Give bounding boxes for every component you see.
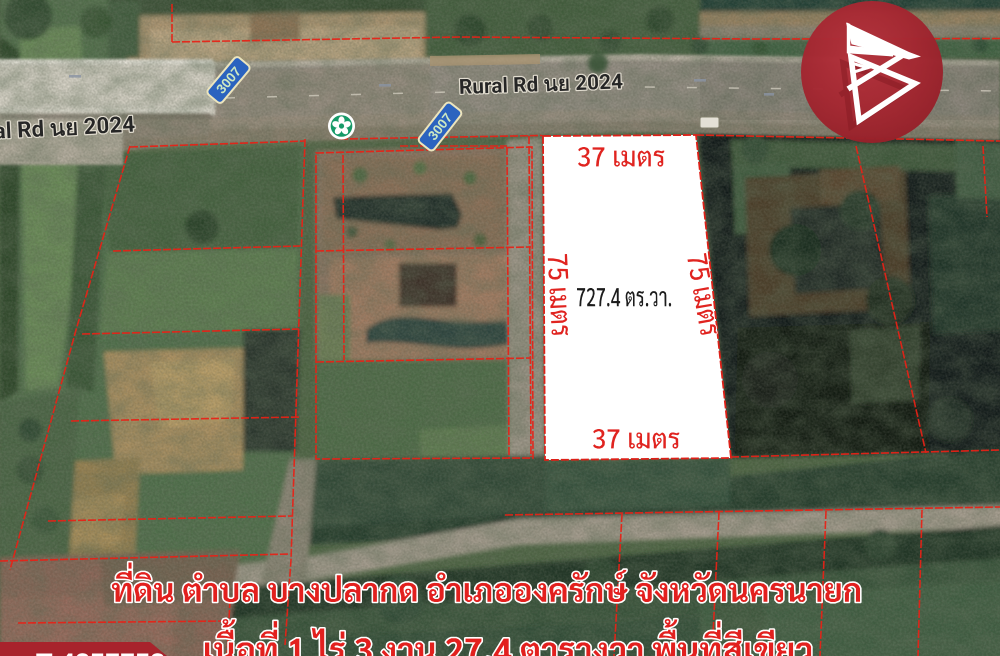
svg-text:T 4257753: T 4257753 xyxy=(36,648,165,656)
